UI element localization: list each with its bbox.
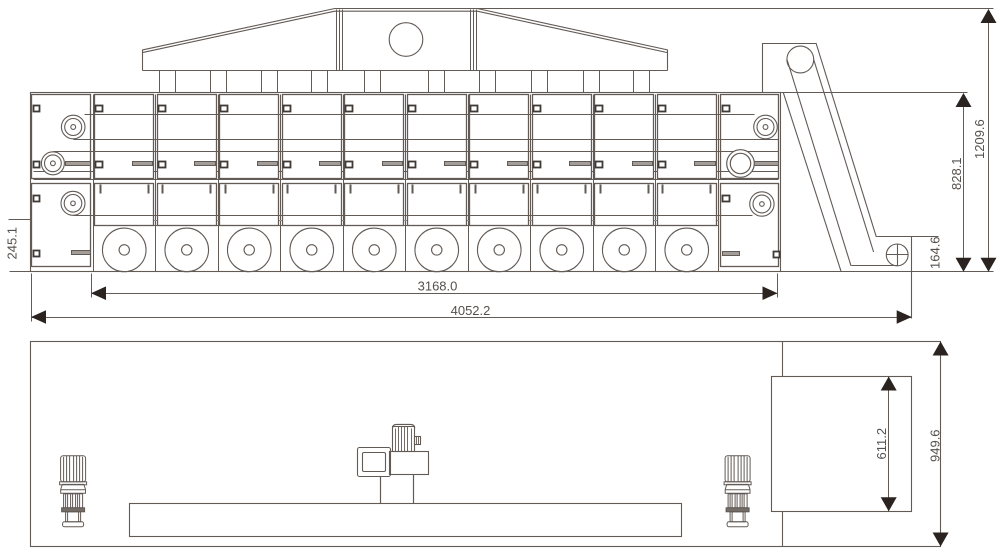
svg-text:3168.0: 3168.0 xyxy=(418,279,458,294)
svg-text:611.2: 611.2 xyxy=(874,428,889,460)
svg-text:828.1: 828.1 xyxy=(949,157,964,190)
svg-text:164.6: 164.6 xyxy=(928,236,943,269)
svg-text:245.1: 245.1 xyxy=(5,227,20,260)
svg-text:949.6: 949.6 xyxy=(928,429,943,462)
svg-text:4052.2: 4052.2 xyxy=(451,303,491,318)
svg-text:1209.6: 1209.6 xyxy=(972,119,987,159)
